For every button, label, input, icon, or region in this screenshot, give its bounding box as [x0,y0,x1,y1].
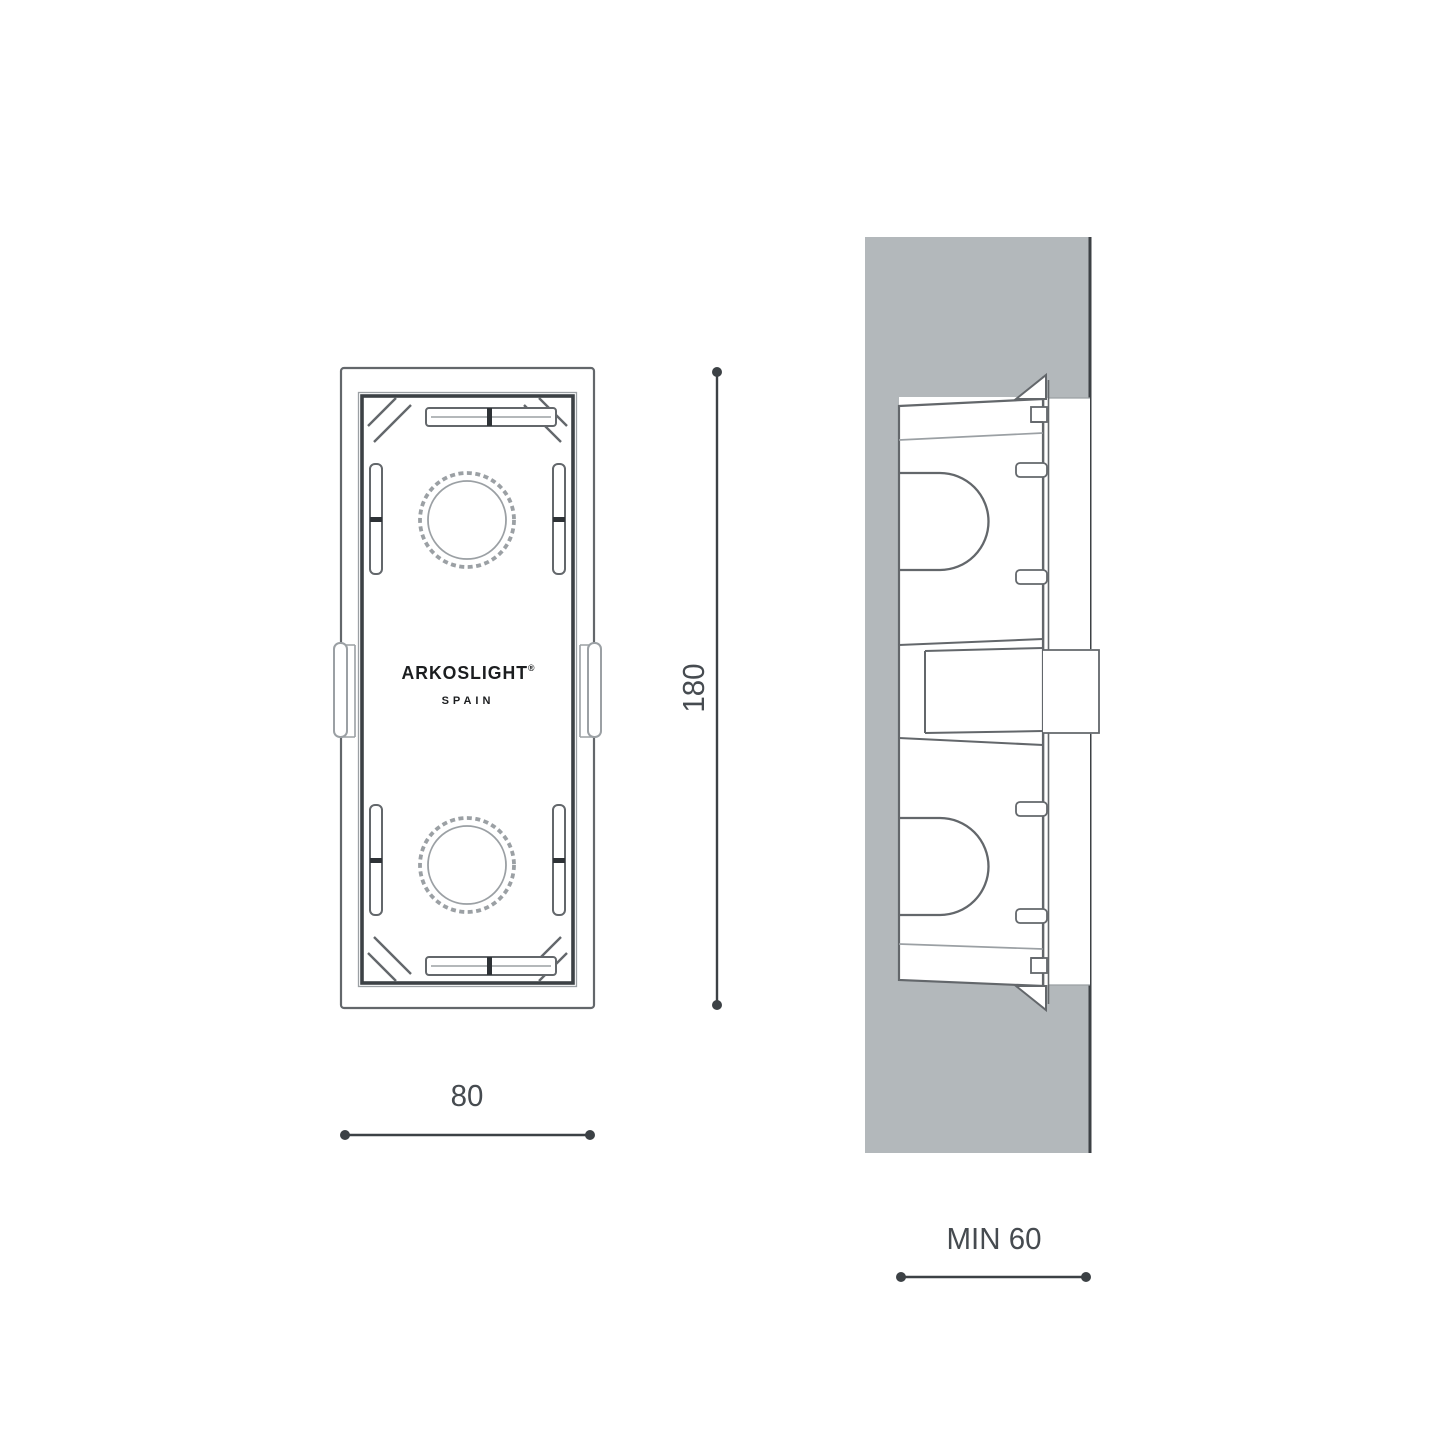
dimension-depth-graphic [896,1272,1091,1282]
technical-drawing-canvas: ARKOSLIGHT® SPAIN 180 80 MIN 60 [0,0,1445,1445]
top-hook [1031,407,1047,422]
front-side-spring-right [588,643,601,737]
brand-logo-text: ARKOSLIGHT® [370,663,566,684]
front-view-drawing [334,368,601,1008]
side-box-outline [899,399,1043,986]
front-side-spring-left [334,643,347,737]
brand-country-text: SPAIN [368,695,568,707]
side-view-drawing [865,237,1099,1153]
front-top-bar [426,408,556,426]
bottom-hook [1031,958,1047,973]
depth-dimension-label: MIN 60 [899,1221,1089,1257]
registered-mark: ® [528,663,535,673]
dimension-height-graphic [712,367,722,1010]
front-bottom-bar [426,957,556,975]
side-center-protrusion [1043,650,1099,733]
height-dimension-label: 180 [676,641,712,736]
width-dimension-label: 80 [420,1078,515,1114]
drawing-linework [0,0,1445,1445]
dimension-width-graphic [340,1130,595,1140]
